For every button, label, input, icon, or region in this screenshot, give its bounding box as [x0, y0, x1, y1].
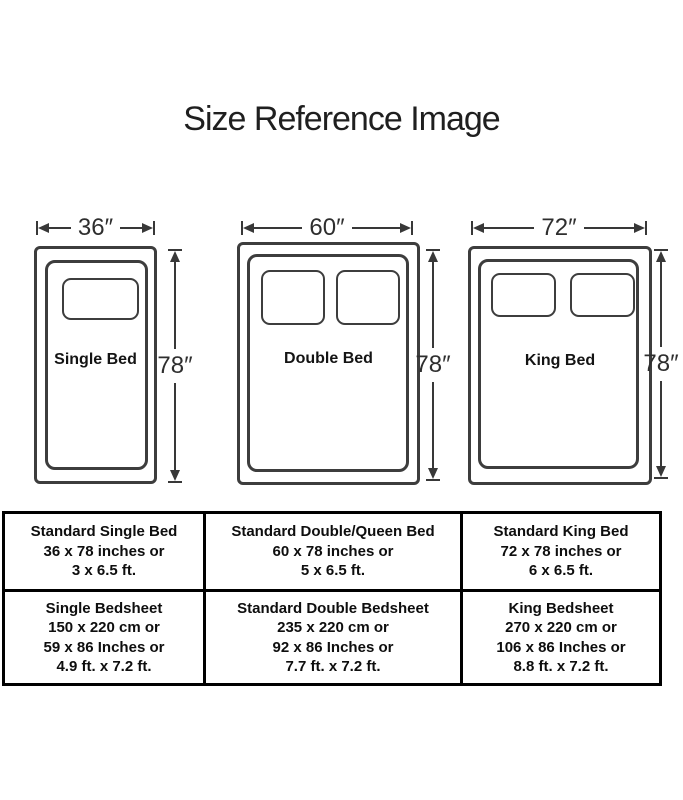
- arrowhead-down-icon: [170, 470, 180, 481]
- height-label-single: 78″: [157, 349, 192, 383]
- arrow-line: [254, 227, 302, 229]
- cell-line: 36 x 78 inches or: [7, 542, 201, 562]
- cell-line: 3 x 6.5 ft.: [7, 561, 201, 581]
- page-title: Size Reference Image: [0, 100, 683, 139]
- arrow-end-tick: [426, 479, 440, 481]
- width-label-single: 36″: [71, 216, 120, 240]
- arrow-line: [120, 227, 142, 229]
- table-cell-standard-king-bed: Standard King Bed 72 x 78 inches or 6 x …: [462, 513, 661, 591]
- table-cell-double-bedsheet: Standard Double Bedsheet 235 x 220 cm or…: [205, 591, 462, 685]
- height-arrow-king: 78″: [643, 249, 679, 479]
- cell-line: King Bedsheet: [465, 599, 657, 619]
- arrow-line: [174, 383, 176, 470]
- cell-line: 270 x 220 cm or: [465, 618, 657, 638]
- arrow-line: [432, 382, 434, 468]
- arrow-end-tick: [654, 477, 668, 479]
- arrow-line: [660, 381, 662, 466]
- arrowhead-left-icon: [473, 223, 484, 233]
- cell-line: 8.8 ft. x 7.2 ft.: [465, 657, 657, 677]
- arrow-end-tick: [411, 221, 413, 235]
- arrow-line: [174, 262, 176, 349]
- bed-name-double: Double Bed: [240, 350, 417, 368]
- width-arrow-king: 72″: [471, 218, 647, 238]
- pillow-icon: [491, 273, 556, 317]
- arrow-end-tick: [153, 221, 155, 235]
- arrow-line: [352, 227, 400, 229]
- arrowhead-left-icon: [243, 223, 254, 233]
- cell-line: 4.9 ft. x 7.2 ft.: [7, 657, 201, 677]
- cell-line: 7.7 ft. x 7.2 ft.: [208, 657, 458, 677]
- cell-line: 60 x 78 inches or: [208, 542, 458, 562]
- arrow-line: [584, 227, 634, 229]
- cell-line: 6 x 6.5 ft.: [465, 561, 657, 581]
- height-label-double: 78″: [415, 348, 450, 382]
- width-arrow-double: 60″: [241, 218, 413, 238]
- arrowhead-up-icon: [428, 251, 438, 262]
- cell-line: 59 x 86 Inches or: [7, 638, 201, 658]
- bed-outline-single: Single Bed: [34, 246, 157, 484]
- bed-outline-double: Double Bed: [237, 242, 420, 485]
- pillow-icon: [62, 278, 139, 320]
- table-row-bed-sizes: Standard Single Bed 36 x 78 inches or 3 …: [4, 513, 661, 591]
- pillow-icon: [261, 270, 325, 325]
- cell-line: Standard Double Bedsheet: [208, 599, 458, 619]
- arrowhead-right-icon: [634, 223, 645, 233]
- bed-name-king: King Bed: [471, 352, 649, 370]
- bed-outline-king: King Bed: [468, 246, 652, 485]
- cell-line: Standard King Bed: [465, 522, 657, 542]
- arrow-line: [432, 262, 434, 348]
- bed-size-table: Standard Single Bed 36 x 78 inches or 3 …: [2, 511, 662, 686]
- table-cell-king-bedsheet: King Bedsheet 270 x 220 cm or 106 x 86 I…: [462, 591, 661, 685]
- cell-line: 106 x 86 Inches or: [465, 638, 657, 658]
- bed-name-single: Single Bed: [37, 351, 154, 369]
- cell-line: Standard Single Bed: [7, 522, 201, 542]
- height-arrow-single: 78″: [157, 249, 193, 483]
- cell-line: 72 x 78 inches or: [465, 542, 657, 562]
- arrowhead-up-icon: [170, 251, 180, 262]
- cell-line: 5 x 6.5 ft.: [208, 561, 458, 581]
- width-label-double: 60″: [302, 216, 351, 240]
- table-cell-standard-double-bed: Standard Double/Queen Bed 60 x 78 inches…: [205, 513, 462, 591]
- cell-line: Standard Double/Queen Bed: [208, 522, 458, 542]
- arrowhead-left-icon: [38, 223, 49, 233]
- arrowhead-right-icon: [142, 223, 153, 233]
- arrow-line: [49, 227, 71, 229]
- pillow-icon: [336, 270, 400, 325]
- arrow-end-tick: [168, 481, 182, 483]
- cell-line: Single Bedsheet: [7, 599, 201, 619]
- cell-line: 150 x 220 cm or: [7, 618, 201, 638]
- arrowhead-down-icon: [428, 468, 438, 479]
- arrowhead-down-icon: [656, 466, 666, 477]
- arrow-line: [484, 227, 534, 229]
- height-label-king: 78″: [643, 347, 678, 381]
- width-label-king: 72″: [534, 216, 583, 240]
- arrow-end-tick: [645, 221, 647, 235]
- table-cell-single-bedsheet: Single Bedsheet 150 x 220 cm or 59 x 86 …: [4, 591, 205, 685]
- arrowhead-up-icon: [656, 251, 666, 262]
- height-arrow-double: 78″: [415, 249, 451, 481]
- table-row-bedsheet-sizes: Single Bedsheet 150 x 220 cm or 59 x 86 …: [4, 591, 661, 685]
- arrow-line: [660, 262, 662, 347]
- cell-line: 235 x 220 cm or: [208, 618, 458, 638]
- arrowhead-right-icon: [400, 223, 411, 233]
- table-cell-standard-single-bed: Standard Single Bed 36 x 78 inches or 3 …: [4, 513, 205, 591]
- cell-line: 92 x 86 Inches or: [208, 638, 458, 658]
- width-arrow-single: 36″: [36, 218, 155, 238]
- size-reference-page: Size Reference Image 36″ Single Bed 78″ …: [0, 0, 683, 800]
- pillow-icon: [570, 273, 635, 317]
